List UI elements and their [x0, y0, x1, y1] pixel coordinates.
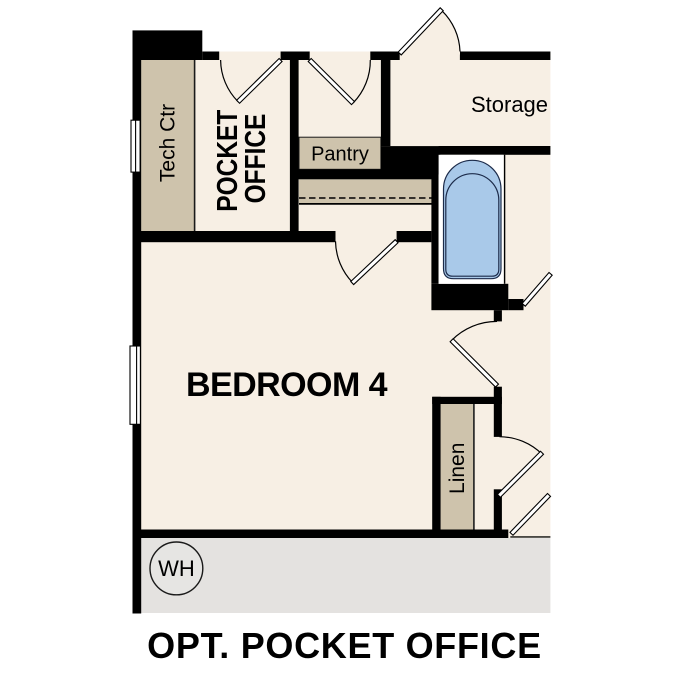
svg-text:Tech Ctr: Tech Ctr — [157, 104, 180, 182]
svg-text:OFFICE: OFFICE — [239, 114, 271, 204]
svg-text:Linen: Linen — [446, 443, 469, 494]
svg-text:BEDROOM 4: BEDROOM 4 — [186, 366, 388, 404]
svg-text:OPT. POCKET OFFICE: OPT. POCKET OFFICE — [147, 625, 542, 666]
svg-text:WH: WH — [158, 556, 195, 581]
svg-text:Pantry: Pantry — [311, 144, 369, 166]
svg-text:Storage: Storage — [471, 92, 548, 117]
